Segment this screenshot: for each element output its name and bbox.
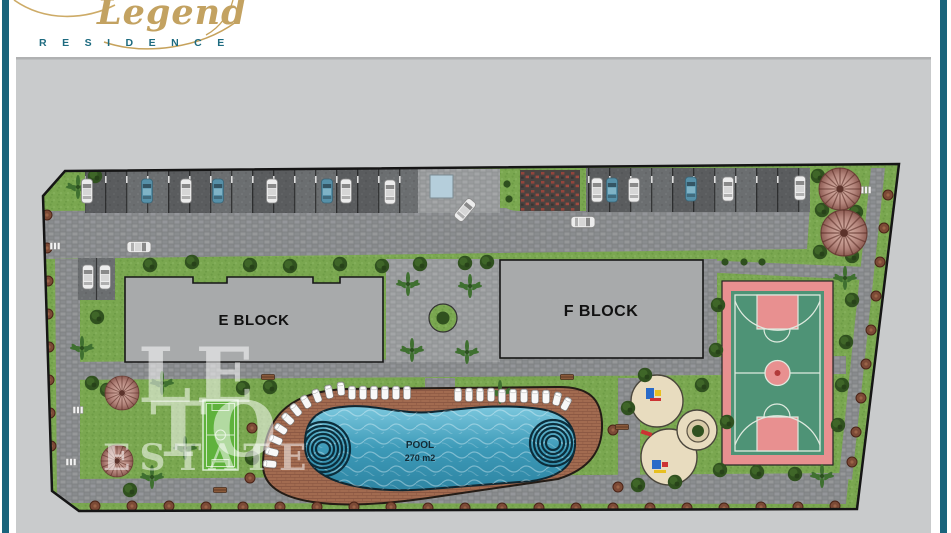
- brown-tree-icon: [861, 359, 871, 369]
- sun-lounger-icon: [348, 386, 355, 400]
- sun-lounger-icon: [498, 389, 505, 403]
- sun-lounger-icon: [370, 386, 377, 400]
- tree-icon: [788, 467, 802, 481]
- car-icon: [629, 178, 640, 202]
- basketball-court: [722, 281, 833, 465]
- tree-icon: [413, 257, 427, 271]
- car-icon: [267, 179, 278, 203]
- tree-icon: [835, 378, 849, 392]
- site-plan-graphic: E BLOCK F BLOCK POOL 270 m2: [0, 0, 951, 533]
- tree-icon: [845, 293, 859, 307]
- shade-structure: [430, 175, 453, 198]
- gazebo-icon: [105, 376, 139, 410]
- brown-tree-icon: [164, 501, 174, 511]
- tree-icon: [750, 465, 764, 479]
- car-icon: [82, 179, 93, 203]
- pool-area-label: 270 m2: [405, 453, 436, 463]
- car-icon: [686, 177, 697, 201]
- brown-tree-icon: [879, 223, 889, 233]
- car-icon: [607, 178, 618, 202]
- bush-icon: [758, 258, 765, 265]
- brown-tree-icon: [856, 393, 866, 403]
- car-icon: [341, 179, 352, 203]
- sun-lounger-icon: [337, 382, 345, 396]
- pool-label: POOL: [406, 440, 434, 451]
- tree-icon: [831, 418, 845, 432]
- railing-bench-icon: [861, 187, 871, 194]
- bush-icon: [721, 258, 728, 265]
- tree-icon: [243, 258, 257, 272]
- sun-lounger-icon: [359, 386, 366, 400]
- left-access-road: [55, 259, 80, 503]
- tree-icon: [839, 335, 853, 349]
- sun-lounger-icon: [531, 390, 538, 404]
- sun-lounger-icon: [392, 386, 399, 400]
- gazebo-icon: [819, 168, 861, 210]
- sun-lounger-icon: [476, 388, 483, 402]
- covered-parking: [520, 170, 580, 211]
- tree-icon: [236, 381, 250, 395]
- tree-icon: [458, 256, 472, 270]
- mini-football-field: [203, 400, 238, 470]
- tree-icon: [638, 368, 652, 382]
- tree-icon: [143, 258, 157, 272]
- sun-lounger-icon: [520, 389, 527, 403]
- parking-green-strip: [500, 169, 520, 211]
- block-e-label: E BLOCK: [219, 312, 290, 329]
- tree-icon: [375, 259, 389, 273]
- car-icon: [571, 217, 595, 228]
- tree-icon: [631, 478, 645, 492]
- site-plan-poster: Legend RESIDENCE: [0, 0, 951, 533]
- brown-tree-icon: [613, 482, 623, 492]
- gazebo-icon: [101, 445, 133, 477]
- car-icon: [127, 242, 151, 253]
- bench-icon: [262, 375, 275, 380]
- tree-icon: [480, 255, 494, 269]
- brown-tree-icon: [127, 501, 137, 511]
- car-icon: [795, 176, 806, 200]
- tree-icon: [185, 255, 199, 269]
- railing-bench-icon: [50, 243, 60, 250]
- sun-lounger-icon: [542, 390, 549, 404]
- bench-icon: [214, 488, 227, 493]
- tree-icon: [263, 380, 277, 394]
- tree-icon: [695, 378, 709, 392]
- bush-icon: [505, 195, 512, 202]
- tree-icon: [713, 463, 727, 477]
- car-icon: [723, 177, 734, 201]
- bench-icon: [616, 425, 629, 430]
- tree-icon: [668, 475, 682, 489]
- bush-icon: [503, 180, 510, 187]
- car-icon: [213, 179, 224, 203]
- car-icon: [100, 265, 111, 289]
- tree-icon: [333, 257, 347, 271]
- brown-tree-icon: [866, 325, 876, 335]
- gazebo-icon: [821, 210, 867, 256]
- tree-icon: [711, 298, 725, 312]
- brown-tree-icon: [883, 190, 893, 200]
- railing-bench-icon: [73, 407, 83, 414]
- brown-tree-icon: [90, 501, 100, 511]
- sun-lounger-icon: [263, 460, 277, 468]
- car-icon: [142, 179, 153, 203]
- tree-icon: [85, 376, 99, 390]
- bench-icon: [561, 375, 574, 380]
- car-icon: [322, 179, 333, 203]
- tree-icon: [283, 259, 297, 273]
- brown-tree-icon: [871, 291, 881, 301]
- tree-icon: [709, 343, 723, 357]
- site-interior: [40, 160, 905, 516]
- brown-tree-icon: [851, 427, 861, 437]
- car-icon: [385, 180, 396, 204]
- car-icon: [83, 265, 94, 289]
- car-icon: [592, 178, 603, 202]
- railing-bench-icon: [66, 459, 76, 466]
- brown-tree-icon: [875, 257, 885, 267]
- sun-lounger-icon: [465, 388, 472, 402]
- bush-icon: [740, 258, 747, 265]
- car-icon: [181, 179, 192, 203]
- brown-tree-icon: [245, 473, 255, 483]
- tree-icon: [90, 310, 104, 324]
- tree-icon: [720, 415, 734, 429]
- sun-lounger-icon: [454, 388, 461, 402]
- sun-lounger-icon: [487, 388, 494, 402]
- tree-icon: [123, 483, 137, 497]
- tree-icon: [245, 451, 259, 465]
- sun-lounger-icon: [403, 386, 410, 400]
- tree-icon: [621, 401, 635, 415]
- block-f-label: F BLOCK: [564, 303, 639, 320]
- basketball-icon: [775, 370, 781, 376]
- brown-tree-icon: [247, 423, 257, 433]
- brown-tree-icon: [847, 457, 857, 467]
- sun-lounger-icon: [509, 389, 516, 403]
- sun-lounger-icon: [381, 386, 388, 400]
